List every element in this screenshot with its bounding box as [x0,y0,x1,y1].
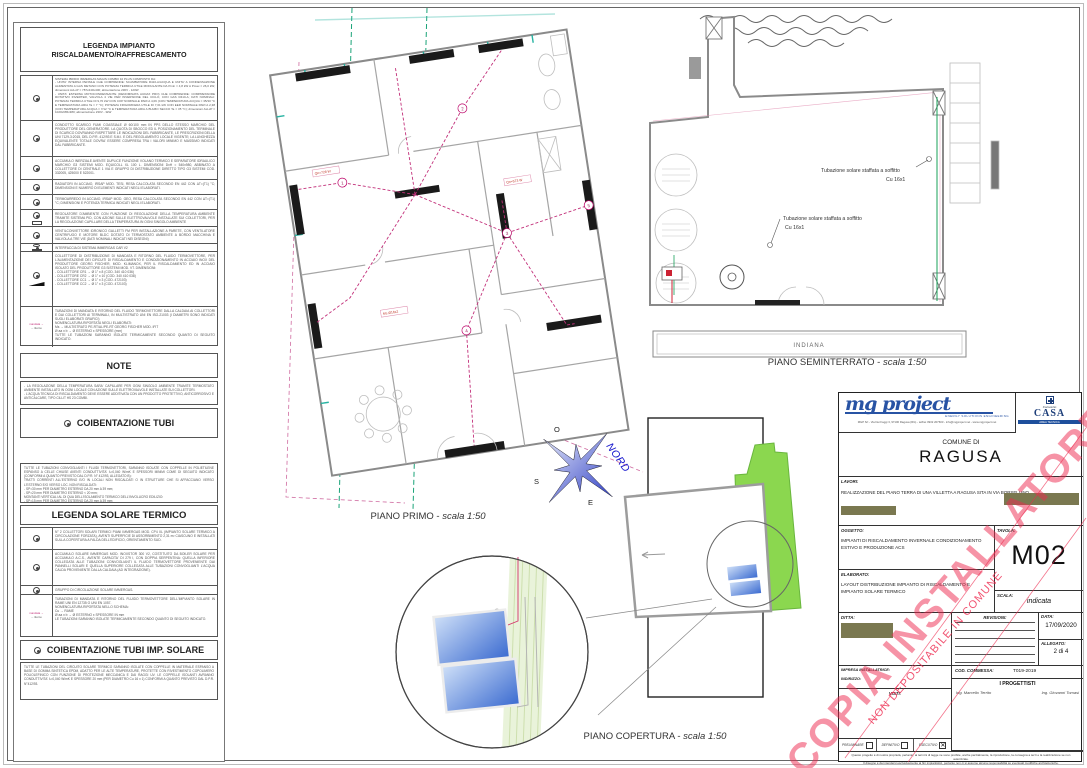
allegato-label: ALLEGATO: [1041,641,1081,646]
terrace-indiana: INDIANA [653,331,966,357]
revisioni-cell: REVISIONI: [952,613,1039,666]
leader-2-text: Tubazione solare staffata a soffitto [783,216,862,222]
coibentazione-text: TUTTE LE TUBAZIONI CONVOGLIANTI I FLUIDI… [20,463,218,503]
coibentazione-title: COIBENTAZIONE TUBI [77,418,174,428]
coibentazione-solare-header: COIBENTAZIONE TUBI IMP. SOLARE [20,640,218,660]
tavola-label: TAVOLA: [997,528,1081,533]
notes-title: NOTE [20,353,218,378]
solar-pump-group-icon [33,587,40,594]
radiator-icon [33,184,40,191]
esecutivo-label: ESECUTIVO [919,743,937,747]
redaction-box [841,623,893,638]
ditta-label: DITTA: [841,615,949,620]
oggetto-text: IMPIANTI DI RISCALDAMENTO INVERNALE COND… [841,538,992,552]
impresa-label: IMPRESA INSTALLATRICE: [841,668,949,672]
ditta-cell: DITTA: [839,613,952,666]
coibentazione-solare-text: TUTTE LE TUBAZIONI DEL CIRCUITO SOLARE T… [20,662,218,700]
notes-text: - LA REGOLAZIONE DELLA TEMPERATURA SARA'… [20,381,218,405]
oggetto-label: OGGETTO: [841,528,992,533]
legend-item-text: ACCUMULO SOLARE IMMERGAS MOD. INOXSTOR 3… [53,550,217,585]
coibentazione-solare-title: COIBENTAZIONE TUBI IMP. SOLARE [47,645,204,655]
progettista-2: Ing. Giovanni Tomasi [1042,690,1079,695]
legend-panel: LEGENDA IMPIANTO RISCALDAMENTO/RAFFRESCA… [13,22,225,762]
thermostat-icon [33,212,40,219]
preliminare-checkbox [866,742,873,749]
legend-heating-title: LEGENDA IMPIANTO RISCALDAMENTO/RAFFRESCA… [20,27,218,72]
preliminare-label: PRELIMINARE [842,743,864,747]
redaction-box [841,506,896,515]
legend-item-text: RADIATORI IN ACCIAIO, IRSAP MOD. TESI, R… [53,180,217,194]
revisioni-label: REVISIONI: [955,615,1035,620]
logo-address: MGP Srl - Via Dei Faggi 3, 97100 Ragusa … [845,420,1009,424]
legend-item-text: TUBAZIONI DI MANDATA E RITORNO DEL FLUID… [53,307,217,347]
legend-item-text: SISTEMA IBRIDO IMMERGAS MAGIS COMBO 10 P… [53,76,217,120]
visti-cell: VISTI: [839,689,952,739]
comune-label: COMUNE DI [839,439,1083,446]
fancoil-icon [33,232,40,239]
data-label: DATA: [1041,614,1081,619]
legend-item-text: N° 2 COLLETTORI SOLARI TERMICI PIANI IMM… [53,528,217,549]
leader-1-size: Cu 16x1 [886,177,905,183]
manifold-wedge-icon [29,281,45,286]
solar-panels-big [433,609,520,713]
system-interface-icon [33,244,40,247]
comune-name: RAGUSA [839,447,1083,467]
oggetto-cell: OGGETTO: IMPIANTI DI RISCALDAMENTO INVER… [839,526,995,570]
hybrid-system-icon [33,95,40,102]
legend-item-text: GRUPPO DI CIRCOLAZIONE SOLARE IMMERGAS. [53,586,217,594]
definitivo-checkbox [901,742,908,749]
manifold-icon [33,272,40,279]
coibentazione-header: COIBENTAZIONE TUBI [20,408,218,438]
flow-symbol: mandataritorno [29,323,43,330]
legend-item-text: TUBAZIONI DI MANDATA E RITORNO DEL FLUID… [53,595,217,637]
casa-sub: AREA TECNICA [1018,420,1081,424]
legend-item-text: INTERFACCIA DI SISTEMA IMMERGAS CAR V2 [53,244,217,251]
progettista-1: Ing. Marcello Territo [956,690,991,695]
piano-seminterrato-caption: PIANO SEMINTERRATO - scala 1:50 [747,357,947,368]
tavola-number: M02 [997,540,1081,571]
esecutivo-checkbox: ✕ [939,742,946,749]
piano-seminterrato-plan: Tubazione solare staffata a soffitto Cu … [628,5,1010,377]
indiana-label: INDIANA [793,343,824,349]
boiler-unit [689,57,701,79]
towel-radiator-icon [33,199,40,206]
progettisti-cell: I PROGETTISTI Ing. Marcello Territo Ing.… [952,679,1083,751]
legend-item-text: REGOLATORE D'AMBIENTE CON FUNZIONE DI RE… [53,210,217,226]
commessa-label: COD. COMMESSA: [955,668,994,673]
progettisti-label: I PROGETTISTI [956,681,1079,687]
impresa-cell: IMPRESA INSTALLATRICE: INDIRIZZO: [839,666,952,689]
buffer-tank-icon [33,165,40,172]
tavola-cell: TAVOLA: M02 [995,526,1083,591]
leader-1-text: Tubazione solare staffata a soffitto [821,168,900,174]
revisioni-table [955,622,1035,663]
casa-logo-icon [1046,396,1054,404]
solar-tank-icon [33,564,40,571]
legend-item-text: COLLETTORE DI DISTRIBUZIONE DI MANDATA E… [53,252,217,306]
scala-value: indicata [997,598,1081,605]
disclaimer-text: Questo progetto è di nostra proprietà, p… [839,751,1083,763]
legend-item-text: CONDOTTO SCARICO FUMI COASSIALE Ø 60/100… [53,121,217,156]
leader-2-size: Cu 16x1 [785,225,804,231]
drawing-sheet: { "legend_heating": { "title": "LEGENDA … [0,0,1087,768]
title-block: mg project ENERGY SOLUTIONS ENGINEERING … [838,392,1082,762]
definitivo-label: DEFINITIVO [882,743,900,747]
legend-solar-title: LEGENDA SOLARE TERMICO [20,505,218,525]
casa-logo-cell: Consorzio CASA AREA TECNICA [1015,393,1083,433]
legend-heating-table: SISTEMA IBRIDO IMMERGAS MAGIS COMBO 10 P… [20,75,218,346]
allegato-cell: ALLEGATO: 2 di 4 [1039,640,1083,666]
flue-icon [33,135,40,142]
solar-flow-symbol: mandataritorno [29,612,43,619]
roof-slope [625,484,771,617]
legend-item-text: ACCUMULO INERZIALE AVENTE DUPLICE FUNZIO… [53,157,217,179]
piano-copertura-caption: PIANO COPERTURA - scala 1:50 [555,731,755,742]
comune-cell: COMUNE DI RAGUSA [839,433,1083,477]
data-cell: DATA: 17/09/2020 [1039,613,1083,640]
scala-cell: SCALA: indicata [995,591,1083,613]
status-checkbox-row: PRELIMINARE DEFINITIVO ESECUTIVO ✕ [839,739,952,751]
visti-label: VISTI: [841,691,949,696]
legend-solar-table: N° 2 COLLETTORI SOLARI TERMICI PIANI IMM… [20,527,218,637]
solar-collector-icon [33,535,40,542]
commessa-value: T019-2019 [1013,669,1036,674]
lavori-label: LAVORI: [841,479,1081,484]
pipe-insulation-icon [64,420,71,427]
data-value: 17/09/2020 [1041,622,1081,629]
controller-icon [32,221,42,225]
elaborato-label: ELABORATO: [841,572,992,577]
lavori-cell: LAVORI: REALIZZAZIONE DEL PIANO TERRA DI… [839,477,1083,526]
allegato-value: 2 di 4 [1041,649,1081,655]
indirizzo-label: INDIRIZZO: [841,677,949,681]
casa-name: CASA [1018,409,1081,419]
solar-pipe-insulation-icon [34,647,41,654]
elaborato-text: LAYOUT DISTRIBUZIONE IMPIANTO DI RISCALD… [841,582,992,596]
legend-item-text: TERMOARREDO IN ACCIAIO, IRSAP MOD. GEO, … [53,195,217,209]
redaction-box [1004,493,1079,505]
logo-cell: mg project ENERGY SOLUTIONS ENGINEERING … [839,393,1015,433]
elaborato-cell: ELABORATO: LAYOUT DISTRIBUZIONE IMPIANTO… [839,570,995,613]
piano-copertura-plan [390,393,842,760]
legend-item-text: VENTILCONVETTORE IDRONICO GALLETTI FM PE… [53,227,217,243]
commessa-cell: COD. COMMESSA: T019-2019 [952,666,1083,679]
